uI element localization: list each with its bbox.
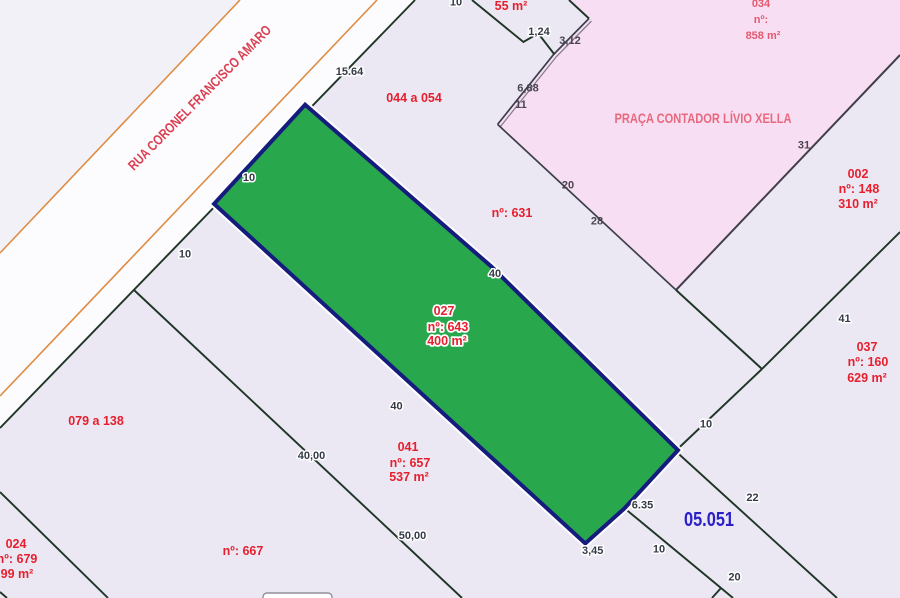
svg-text:537 m²: 537 m²	[389, 470, 429, 484]
svg-text:99 m²: 99 m²	[1, 567, 34, 581]
svg-text:10: 10	[450, 0, 462, 9]
svg-text:044 a 054: 044 a 054	[386, 91, 442, 105]
svg-text:10: 10	[700, 419, 712, 431]
svg-text:31: 31	[798, 140, 810, 152]
svg-text:nº: 679: nº: 679	[0, 552, 37, 566]
svg-text:nº:: nº:	[754, 14, 768, 26]
svg-text:858 m²: 858 m²	[746, 30, 781, 42]
svg-text:nº: 148: nº: 148	[839, 182, 880, 196]
svg-text:nº: 657: nº: 657	[390, 456, 431, 470]
svg-text:11: 11	[515, 99, 527, 111]
svg-text:3,45: 3,45	[582, 545, 603, 557]
svg-text:22: 22	[746, 492, 758, 504]
svg-text:20: 20	[728, 572, 740, 584]
svg-text:nº: 643: nº: 643	[428, 320, 469, 334]
svg-text:629 m²: 629 m²	[847, 371, 887, 385]
svg-text:28: 28	[591, 216, 603, 228]
svg-text:41: 41	[838, 313, 850, 325]
svg-text:20: 20	[562, 180, 574, 192]
svg-text:027: 027	[434, 304, 455, 318]
svg-text:40: 40	[390, 401, 402, 413]
svg-text:400 m²: 400 m²	[427, 334, 467, 348]
svg-text:55 m²: 55 m²	[495, 0, 528, 13]
svg-text:nº: 631: nº: 631	[492, 206, 533, 220]
svg-text:024: 024	[6, 537, 27, 551]
svg-text:041: 041	[398, 440, 419, 454]
svg-text:079 a 138: 079 a 138	[68, 414, 124, 428]
svg-text:40: 40	[489, 268, 501, 280]
svg-text:037: 037	[857, 340, 878, 354]
svg-text:310 m²: 310 m²	[838, 197, 878, 211]
svg-text:1,24: 1,24	[528, 26, 550, 38]
svg-text:nº: 667: nº: 667	[223, 544, 264, 558]
svg-text:10: 10	[179, 249, 191, 261]
svg-text:002: 002	[848, 167, 869, 181]
svg-text:034: 034	[752, 0, 771, 10]
svg-text:PRAÇA CONTADOR LÍVIO XELLA: PRAÇA CONTADOR LÍVIO XELLA	[615, 110, 792, 126]
svg-text:6.35: 6.35	[632, 500, 653, 512]
svg-text:40,00: 40,00	[298, 450, 326, 462]
svg-text:05.051: 05.051	[684, 509, 734, 531]
svg-text:nº: 160: nº: 160	[848, 355, 889, 369]
svg-text:50,00: 50,00	[399, 530, 427, 542]
svg-text:10: 10	[653, 544, 665, 556]
svg-text:3,12: 3,12	[559, 35, 580, 47]
svg-text:15.64: 15.64	[336, 66, 364, 78]
svg-text:10: 10	[243, 172, 255, 184]
svg-text:6,88: 6,88	[517, 83, 538, 95]
